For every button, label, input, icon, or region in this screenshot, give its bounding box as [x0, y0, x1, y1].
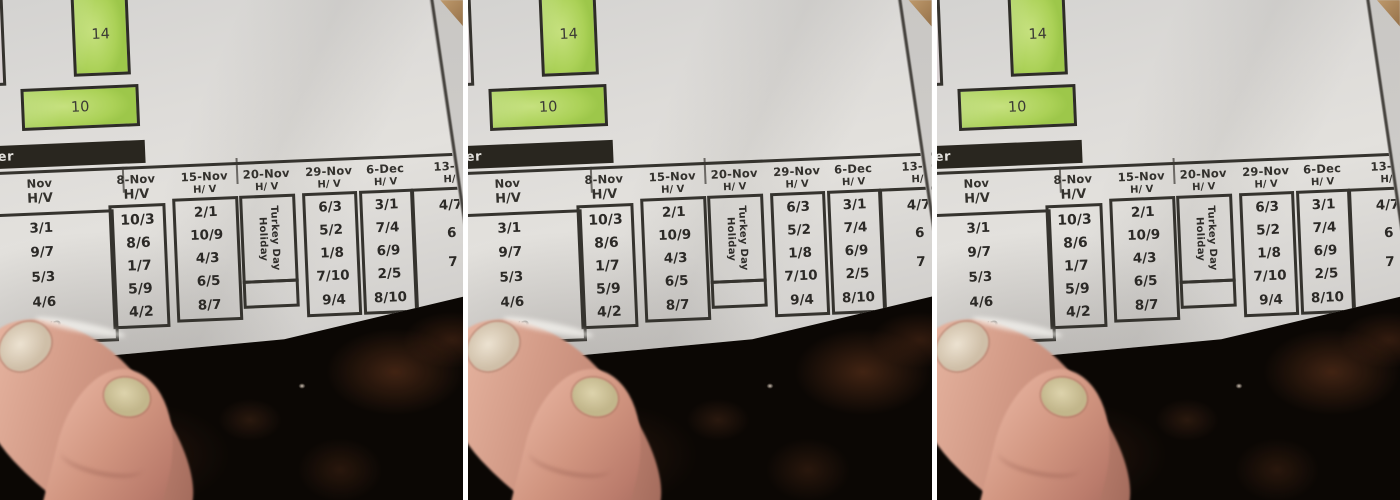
schedule-paper: en 14 10 nter Nov H/V 3/1 9/7 5/3	[468, 0, 931, 366]
column-date: 20-Nov	[242, 166, 290, 182]
matchup-cell: 4/2	[584, 304, 636, 320]
home-visitor-label: H/	[1380, 174, 1392, 185]
schedule-column-6dec: 6-Dec H/ V 3/1 7/4 6/9 2/5 8/10	[826, 161, 886, 315]
matchup-cell: 10/3	[112, 212, 164, 228]
highlighted-box-14-label: 14	[559, 26, 578, 43]
matchup-cell	[1355, 283, 1400, 286]
matchup-cell: 6/3	[305, 200, 355, 216]
highlighted-box-10: 10	[489, 84, 609, 131]
column-date: 15-Nov	[1117, 168, 1165, 184]
matchup-cell: 2/5	[365, 267, 414, 282]
matchup-cell: 3/1	[362, 198, 411, 213]
highlighted-box-14-label: 14	[91, 26, 110, 43]
matchup-cell: 6	[884, 226, 932, 243]
column-date: 8-Nov	[116, 171, 155, 187]
schedule-column-15nov: 15-Nov H/ V 2/1 10/9 4/3 6/5 8/7	[1108, 168, 1180, 323]
holiday-text-line1: Turkey Day	[1205, 206, 1219, 272]
schedule-column-20nov: 20-Nov H/ V Turkey Day Holiday	[706, 166, 768, 309]
home-visitor-label: H/ V	[255, 181, 279, 193]
matchup-cell: 7/4	[363, 221, 412, 236]
matchup-cell: 7/10	[1245, 269, 1295, 285]
matchup-cell: 5/3	[0, 269, 114, 288]
matchup-cell: 2/1	[176, 205, 237, 221]
column-date: 15-Nov	[180, 168, 228, 184]
column-date: Nov	[26, 176, 52, 191]
home-visitor-label: H/V	[495, 191, 521, 207]
matchup-cell: 3/1	[0, 219, 112, 238]
highlighted-box-14: 14	[1007, 0, 1067, 77]
matchup-cell: 5/9	[583, 281, 635, 297]
matchup-cell: 10/9	[1113, 228, 1174, 244]
matchup-cell: 1/8	[776, 246, 826, 262]
holiday-text-line1: Turkey Day	[268, 206, 282, 272]
home-visitor-label: H/ V	[842, 176, 866, 188]
matchup-box: 3/1 7/4 6/9 2/5 8/10	[359, 189, 418, 315]
holiday-box: Turkey Day Holiday	[707, 194, 767, 284]
schedule-column-8nov: 8-Nov H/V 10/3 8/6 1/7 5/9 4/2	[575, 171, 638, 329]
matchup-cell: 10/3	[1048, 212, 1100, 228]
matchup-cell: 3/1	[831, 198, 880, 213]
matchup-cell: 4/3	[177, 251, 238, 267]
home-visitor-label: H/ V	[723, 181, 747, 193]
matchup-cell: 4/6	[0, 293, 115, 312]
matchup-cell: 2/1	[1112, 205, 1173, 221]
partial-roster-box: en	[0, 0, 6, 88]
schedule-column-29nov: 29-Nov H/ V 6/3 5/2 1/8 7/10 9/4	[769, 163, 830, 317]
matchup-cell: 10/3	[580, 212, 632, 228]
column-date: 20-Nov	[1179, 166, 1227, 182]
highlighted-box-10: 10	[20, 84, 140, 131]
matchup-cell: 9/7	[468, 244, 581, 263]
matchup-box: 2/1 10/9 4/3 6/5 8/7	[1109, 196, 1180, 323]
schedule-column-6dec: 6-Dec H/ V 3/1 7/4 6/9 2/5 8/10	[358, 161, 418, 315]
matchup-cell: 8/6	[1049, 235, 1101, 251]
home-visitor-label: H/ V	[317, 179, 341, 191]
matchup-cell: 1/7	[582, 258, 634, 274]
matchup-cell	[1355, 298, 1400, 301]
matchup-cell: 6/5	[647, 274, 708, 290]
matchup-box: 10/3 8/6 1/7 5/9 4/2	[577, 203, 639, 329]
matchup-cell: 3/1	[1299, 198, 1348, 213]
schedule-column-6dec: 6-Dec H/ V 3/1 7/4 6/9 2/5 8/10	[1294, 161, 1354, 315]
matchup-box: 4/7 6 7	[1348, 185, 1400, 312]
column-date: 8-Nov	[1053, 171, 1092, 187]
matchup-cell	[886, 283, 931, 286]
highlighted-box-10-label: 10	[539, 99, 558, 116]
schedule-column-8nov: 8-Nov H/V 10/3 8/6 1/7 5/9 4/2	[1044, 171, 1107, 329]
matchup-cell: 1/7	[1050, 258, 1102, 274]
photo-panel: en 14 10 nter Nov H/V 3/1 9/7 5/3	[0, 0, 463, 500]
matchup-cell: 8/7	[648, 298, 709, 314]
matchup-cell: 6/3	[774, 200, 824, 216]
column-date: 15-Nov	[649, 168, 697, 184]
empty-cell-box	[711, 279, 768, 309]
matchup-box: 6/3 5/2 1/8 7/10 9/4	[302, 191, 362, 317]
matchup-cell: 10/9	[176, 228, 237, 244]
home-visitor-label: H/V	[1060, 187, 1086, 203]
partial-roster-box: en	[468, 0, 474, 88]
matchup-cell: 3/1	[937, 219, 1049, 238]
section-banner-text: nter	[0, 149, 14, 165]
empty-cell-box	[1179, 279, 1236, 309]
schedule-paper: en 14 10 nter Nov H/V 3/1 9/7 5/3	[0, 0, 463, 366]
column-date: 20-Nov	[711, 166, 759, 182]
matchup-cell: 8/10	[1303, 290, 1352, 305]
matchup-cell: 5/2	[306, 223, 356, 239]
highlighted-box-14-label: 14	[1028, 26, 1047, 43]
holiday-text-line1: Turkey Day	[736, 206, 750, 272]
matchup-cell: 9/4	[1246, 293, 1296, 309]
schedule-column-20nov: 20-Nov H/ V Turkey Day Holiday	[1175, 166, 1237, 309]
column-date: Nov	[495, 176, 521, 191]
home-visitor-label: H/ V	[661, 184, 685, 196]
matchup-cell: 5/9	[1051, 281, 1103, 297]
matchup-cell: 8/7	[179, 298, 240, 314]
empty-cell-box	[243, 279, 300, 309]
photo-panel: en 14 10 nter Nov H/V 3/1 9/7 5/3	[937, 0, 1400, 500]
matchup-cell: 7	[417, 254, 464, 271]
column-date: 29-Nov	[773, 163, 821, 179]
home-visitor-label: H/V	[964, 191, 990, 207]
matchup-cell	[419, 298, 464, 301]
highlighted-box-10-label: 10	[71, 99, 90, 116]
matchup-cell	[887, 298, 932, 301]
matchup-cell: 4/7	[883, 197, 932, 214]
matchup-cell: 7	[885, 254, 932, 271]
matchup-cell: 5/2	[775, 223, 825, 239]
matchup-cell: 6	[1352, 226, 1400, 243]
schedule-column-13dec-clipped: 13-D H/ 4/7 6 7	[410, 157, 464, 312]
matchup-cell: 10/9	[645, 228, 706, 244]
schedule-column-13dec-clipped: 13-D H/ 4/7 6 7	[878, 157, 932, 312]
matchup-cell: 4/6	[937, 293, 1052, 312]
home-visitor-label: H/ V	[1192, 181, 1216, 193]
home-visitor-label: H/ V	[193, 184, 217, 196]
home-visitor-label: H/V	[123, 187, 149, 203]
matchup-cell: 6/5	[1115, 274, 1176, 290]
matchup-cell: 9/7	[0, 244, 113, 263]
column-date: 6-Dec	[366, 161, 404, 177]
matchup-cell: 2/1	[644, 205, 705, 221]
matchup-cell: 7/4	[1300, 221, 1349, 236]
matchup-cell: 8/6	[113, 235, 165, 251]
matchup-box: 6/3 5/2 1/8 7/10 9/4	[1239, 191, 1299, 317]
matchup-cell: 3/1	[468, 219, 580, 238]
schedule-paper: en 14 10 nter Nov H/V 3/1 9/7 5/3	[937, 0, 1400, 366]
matchup-cell: 7/10	[777, 269, 827, 285]
photo-panel: en 14 10 nter Nov H/V 3/1 9/7 5/3	[468, 0, 931, 500]
highlighted-box-14: 14	[71, 0, 131, 77]
holiday-box: Turkey Day Holiday	[1176, 194, 1236, 284]
matchup-cell: 6/5	[178, 274, 239, 290]
matchup-cell: 4/2	[116, 304, 168, 320]
matchup-cell: 1/8	[1244, 246, 1294, 262]
matchup-cell: 5/2	[1243, 223, 1293, 239]
home-visitor-label: H/ V	[786, 179, 810, 191]
column-date: 6-Dec	[834, 161, 872, 177]
matchup-cell: 8/7	[1116, 298, 1177, 314]
section-banner-text: nter	[468, 149, 482, 165]
matchup-cell: 8/10	[835, 290, 884, 305]
home-visitor-label: H/ V	[1310, 176, 1334, 188]
matchup-cell: 2/5	[834, 267, 883, 282]
matchup-cell: 1/8	[307, 246, 357, 262]
matchup-cell: 5/9	[115, 281, 167, 297]
matchup-cell: 6/3	[1242, 200, 1292, 216]
column-date: 29-Nov	[1242, 163, 1290, 179]
home-visitor-label: H/	[443, 174, 455, 185]
column-date: 8-Nov	[584, 171, 623, 187]
schedule-column-29nov: 29-Nov H/ V 6/3 5/2 1/8 7/10 9/4	[1238, 163, 1299, 317]
partial-roster-box: en	[937, 0, 943, 88]
matchup-cell: 1/7	[114, 258, 166, 274]
home-visitor-label: H/V	[27, 191, 53, 207]
schedule-column-8nov: 8-Nov H/V 10/3 8/6 1/7 5/9 4/2	[107, 171, 170, 329]
schedule-column-15nov: 15-Nov H/ V 2/1 10/9 4/3 6/5 8/7	[171, 168, 243, 323]
matchup-cell: 9/4	[778, 293, 828, 309]
matchup-cell: 6/9	[833, 244, 882, 259]
matchup-cell: 4/7	[1351, 197, 1400, 214]
column-date: Nov	[963, 176, 989, 191]
holiday-text-line2: Holiday	[256, 217, 269, 262]
matchup-cell: 8/6	[581, 235, 633, 251]
schedule-column-29nov: 29-Nov H/ V 6/3 5/2 1/8 7/10 9/4	[301, 163, 362, 317]
column-date: 6-Dec	[1302, 161, 1340, 177]
home-visitor-label: H/ V	[1254, 179, 1278, 191]
matchup-cell: 6/9	[1301, 244, 1350, 259]
holiday-box: Turkey Day Holiday	[239, 194, 299, 284]
matchup-cell: 9/7	[937, 244, 1050, 263]
matchup-cell: 5/3	[937, 269, 1051, 288]
matchup-cell: 4/7	[414, 197, 463, 214]
holiday-text-line2: Holiday	[725, 217, 738, 262]
matchup-cell: 4/3	[646, 251, 707, 267]
matchup-box: 2/1 10/9 4/3 6/5 8/7	[172, 196, 243, 323]
matchup-cell: 5/3	[468, 269, 582, 288]
matchup-cell: 4/3	[1114, 251, 1175, 267]
matchup-box: 10/3 8/6 1/7 5/9 4/2	[108, 203, 170, 329]
highlighted-box-10-label: 10	[1007, 99, 1026, 116]
matchup-box: 4/7 6 7	[879, 185, 931, 312]
matchup-box: 2/1 10/9 4/3 6/5 8/7	[640, 196, 711, 323]
home-visitor-label: H/ V	[1130, 184, 1154, 196]
matchup-cell: 6/9	[364, 244, 413, 259]
home-visitor-label: H/V	[592, 187, 618, 203]
matchup-cell: 2/5	[1302, 267, 1351, 282]
highlighted-box-14: 14	[539, 0, 599, 77]
matchup-cell	[418, 283, 463, 286]
home-visitor-label: H/ V	[374, 176, 398, 188]
schedule-column-15nov: 15-Nov H/ V 2/1 10/9 4/3 6/5 8/7	[639, 168, 711, 323]
matchup-cell: 7	[1353, 254, 1400, 271]
matchup-cell: 6	[416, 226, 464, 243]
matchup-box: 6/3 5/2 1/8 7/10 9/4	[770, 191, 830, 317]
matchup-box: 3/1 7/4 6/9 2/5 8/10	[827, 189, 886, 315]
matchup-cell: 9/4	[309, 293, 359, 309]
matchup-box: 3/1 7/4 6/9 2/5 8/10	[1296, 189, 1355, 315]
matchup-cell: 8/10	[366, 290, 415, 305]
section-banner-text: nter	[937, 149, 951, 165]
highlighted-box-10: 10	[957, 84, 1077, 131]
schedule-column-13dec-clipped: 13-D H/ 4/7 6 7	[1346, 157, 1400, 312]
matchup-cell: 7/4	[832, 221, 881, 236]
matchup-cell: 4/2	[1052, 304, 1104, 320]
column-date: 29-Nov	[305, 163, 353, 179]
matchup-cell: 4/6	[468, 293, 583, 312]
holiday-text-line2: Holiday	[1193, 217, 1206, 262]
matchup-box: 10/3 8/6 1/7 5/9 4/2	[1045, 203, 1107, 329]
schedule-column-20nov: 20-Nov H/ V Turkey Day Holiday	[238, 166, 300, 309]
triptych-strip: en 14 10 nter Nov H/V 3/1 9/7 5/3	[0, 0, 1400, 500]
home-visitor-label: H/	[912, 174, 924, 185]
matchup-cell: 7/10	[308, 269, 358, 285]
matchup-box: 4/7 6 7	[411, 185, 463, 312]
